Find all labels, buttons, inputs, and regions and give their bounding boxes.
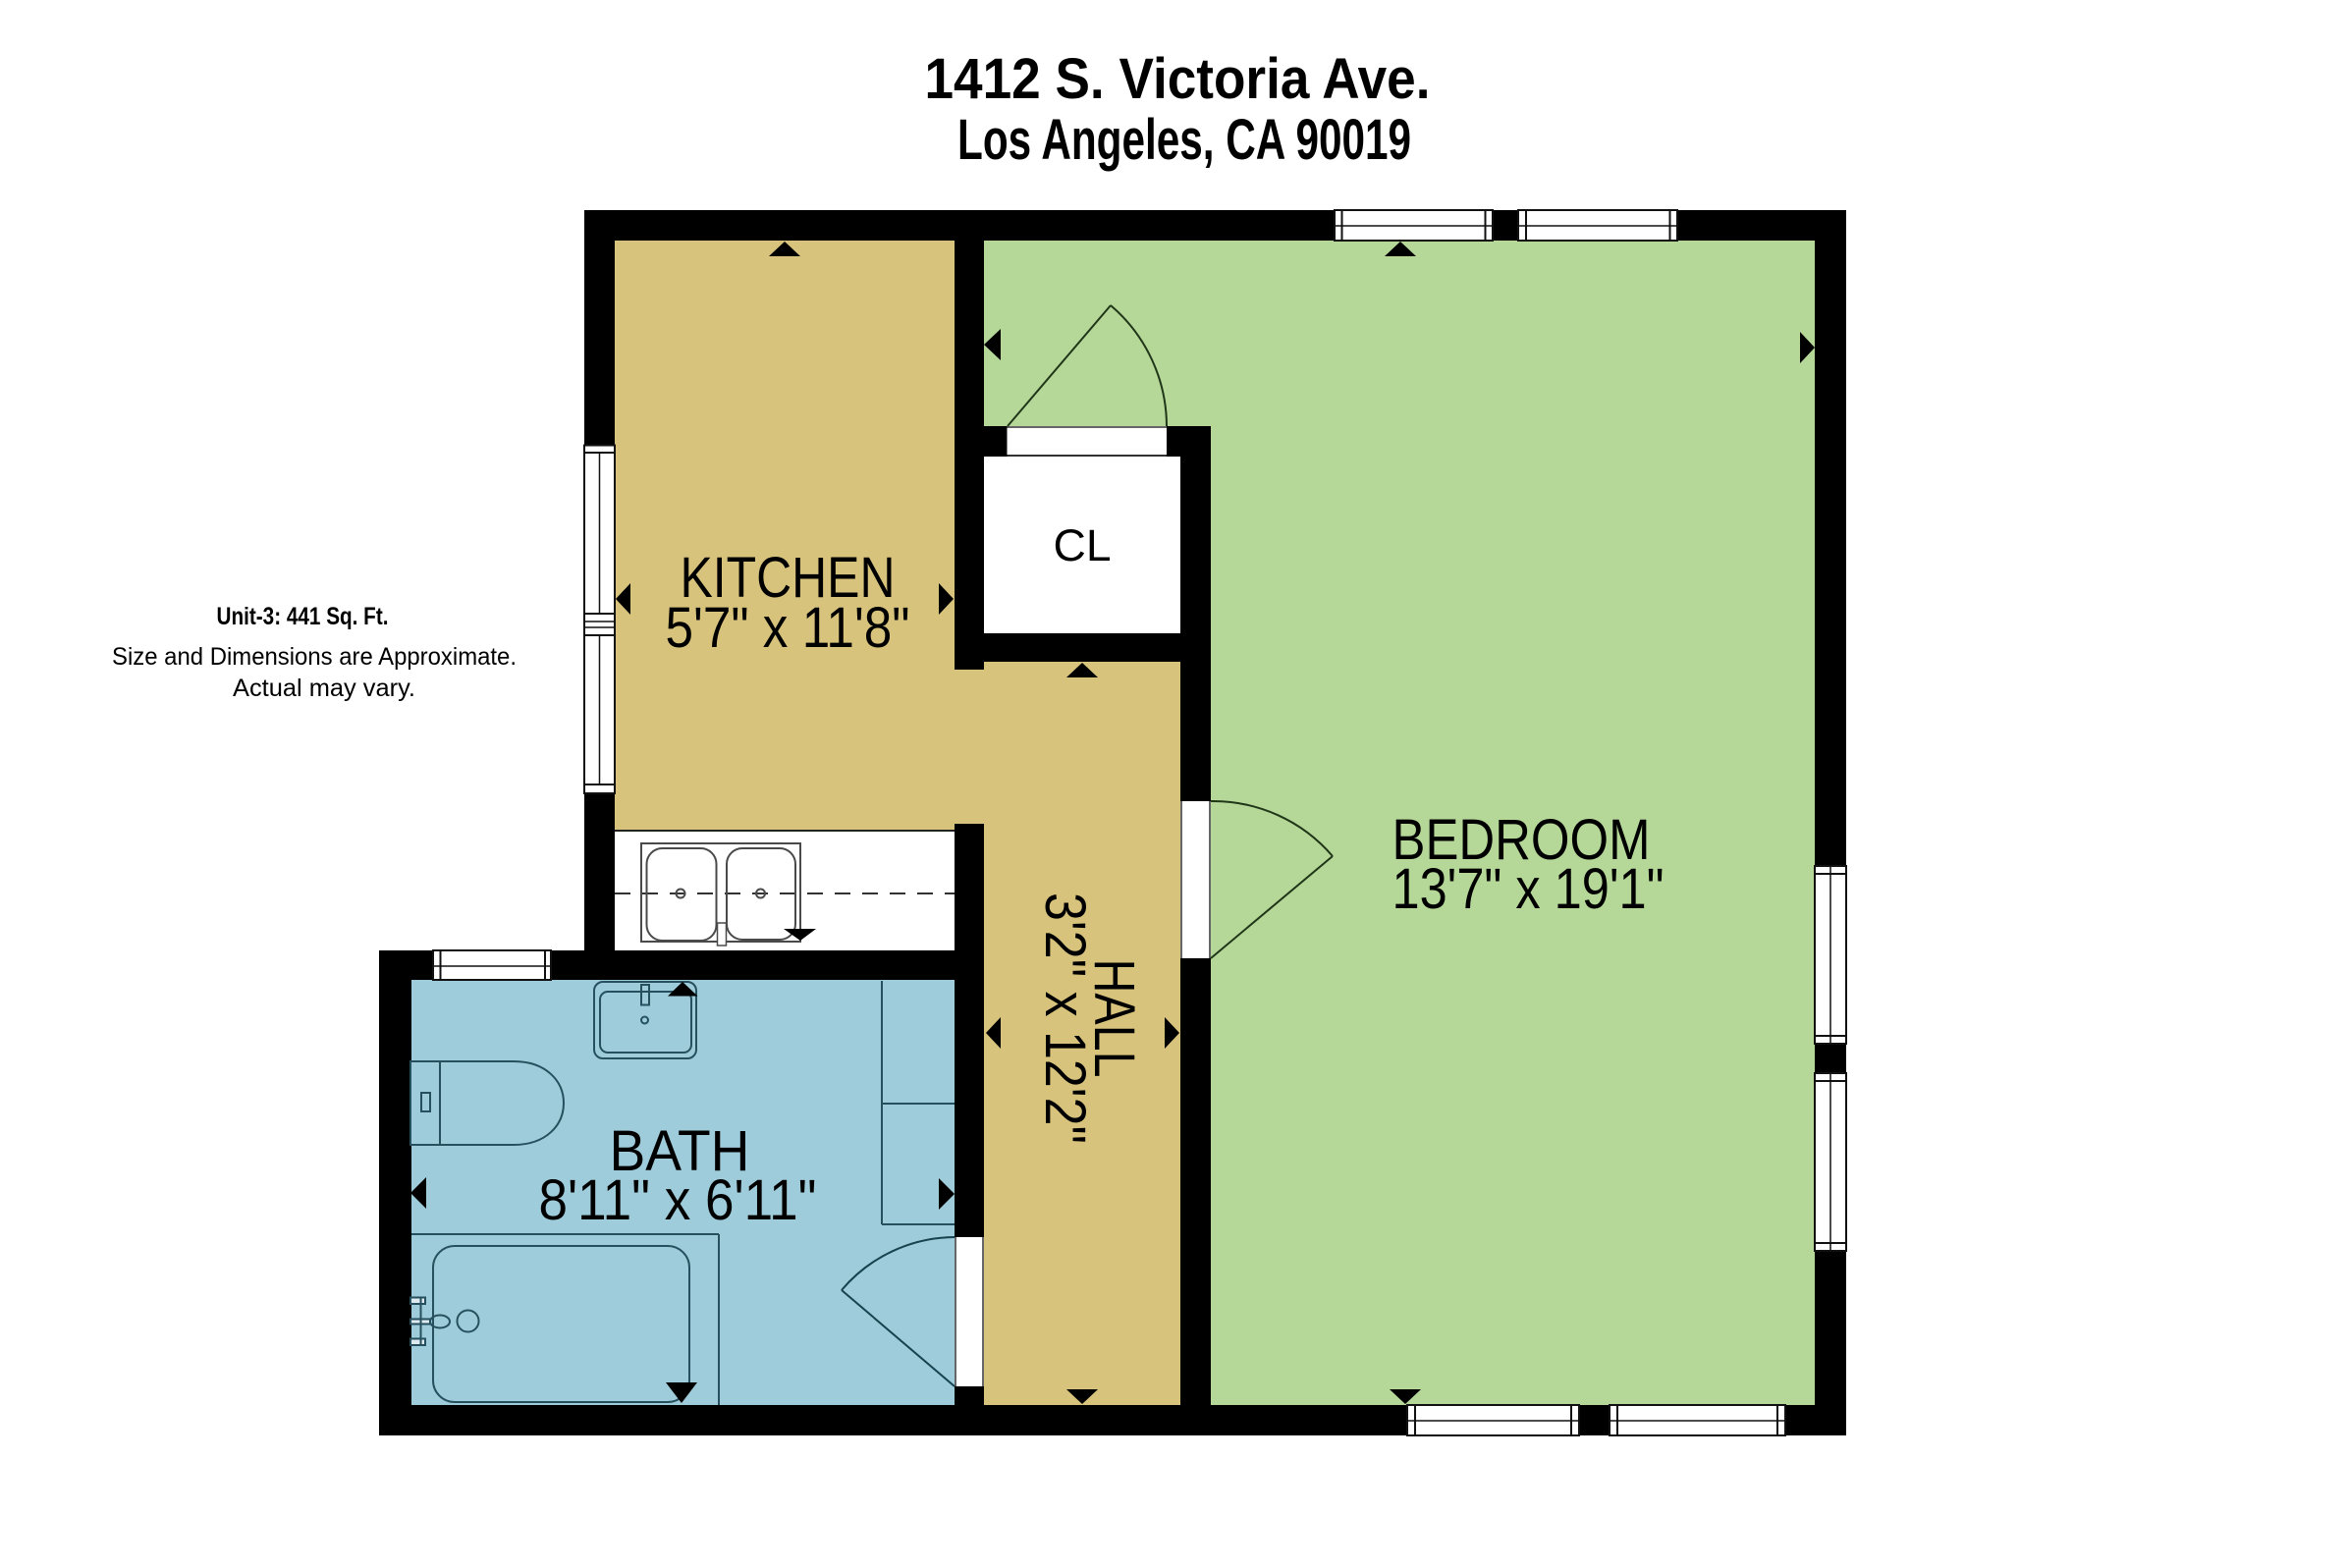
svg-text:1412 S. Victoria Ave.: 1412 S. Victoria Ave.	[925, 47, 1431, 111]
svg-text:5'7" x 11'8": 5'7" x 11'8"	[666, 596, 910, 660]
svg-text:Size and Dimensions are Approx: Size and Dimensions are Approximate.	[112, 643, 517, 671]
svg-text:Los Angeles, CA 90019: Los Angeles, CA 90019	[957, 108, 1411, 172]
svg-text:CL: CL	[1054, 520, 1112, 570]
svg-text:Unit-3: 441 Sq. Ft.: Unit-3: 441 Sq. Ft.	[217, 603, 389, 630]
svg-text:13'7" x 19'1": 13'7" x 19'1"	[1392, 857, 1665, 921]
svg-text:Actual may vary.: Actual may vary.	[233, 675, 415, 702]
svg-text:8'11" x 6'11": 8'11" x 6'11"	[539, 1168, 817, 1232]
svg-text:3'2" x 12'2": 3'2" x 12'2"	[1033, 892, 1097, 1144]
